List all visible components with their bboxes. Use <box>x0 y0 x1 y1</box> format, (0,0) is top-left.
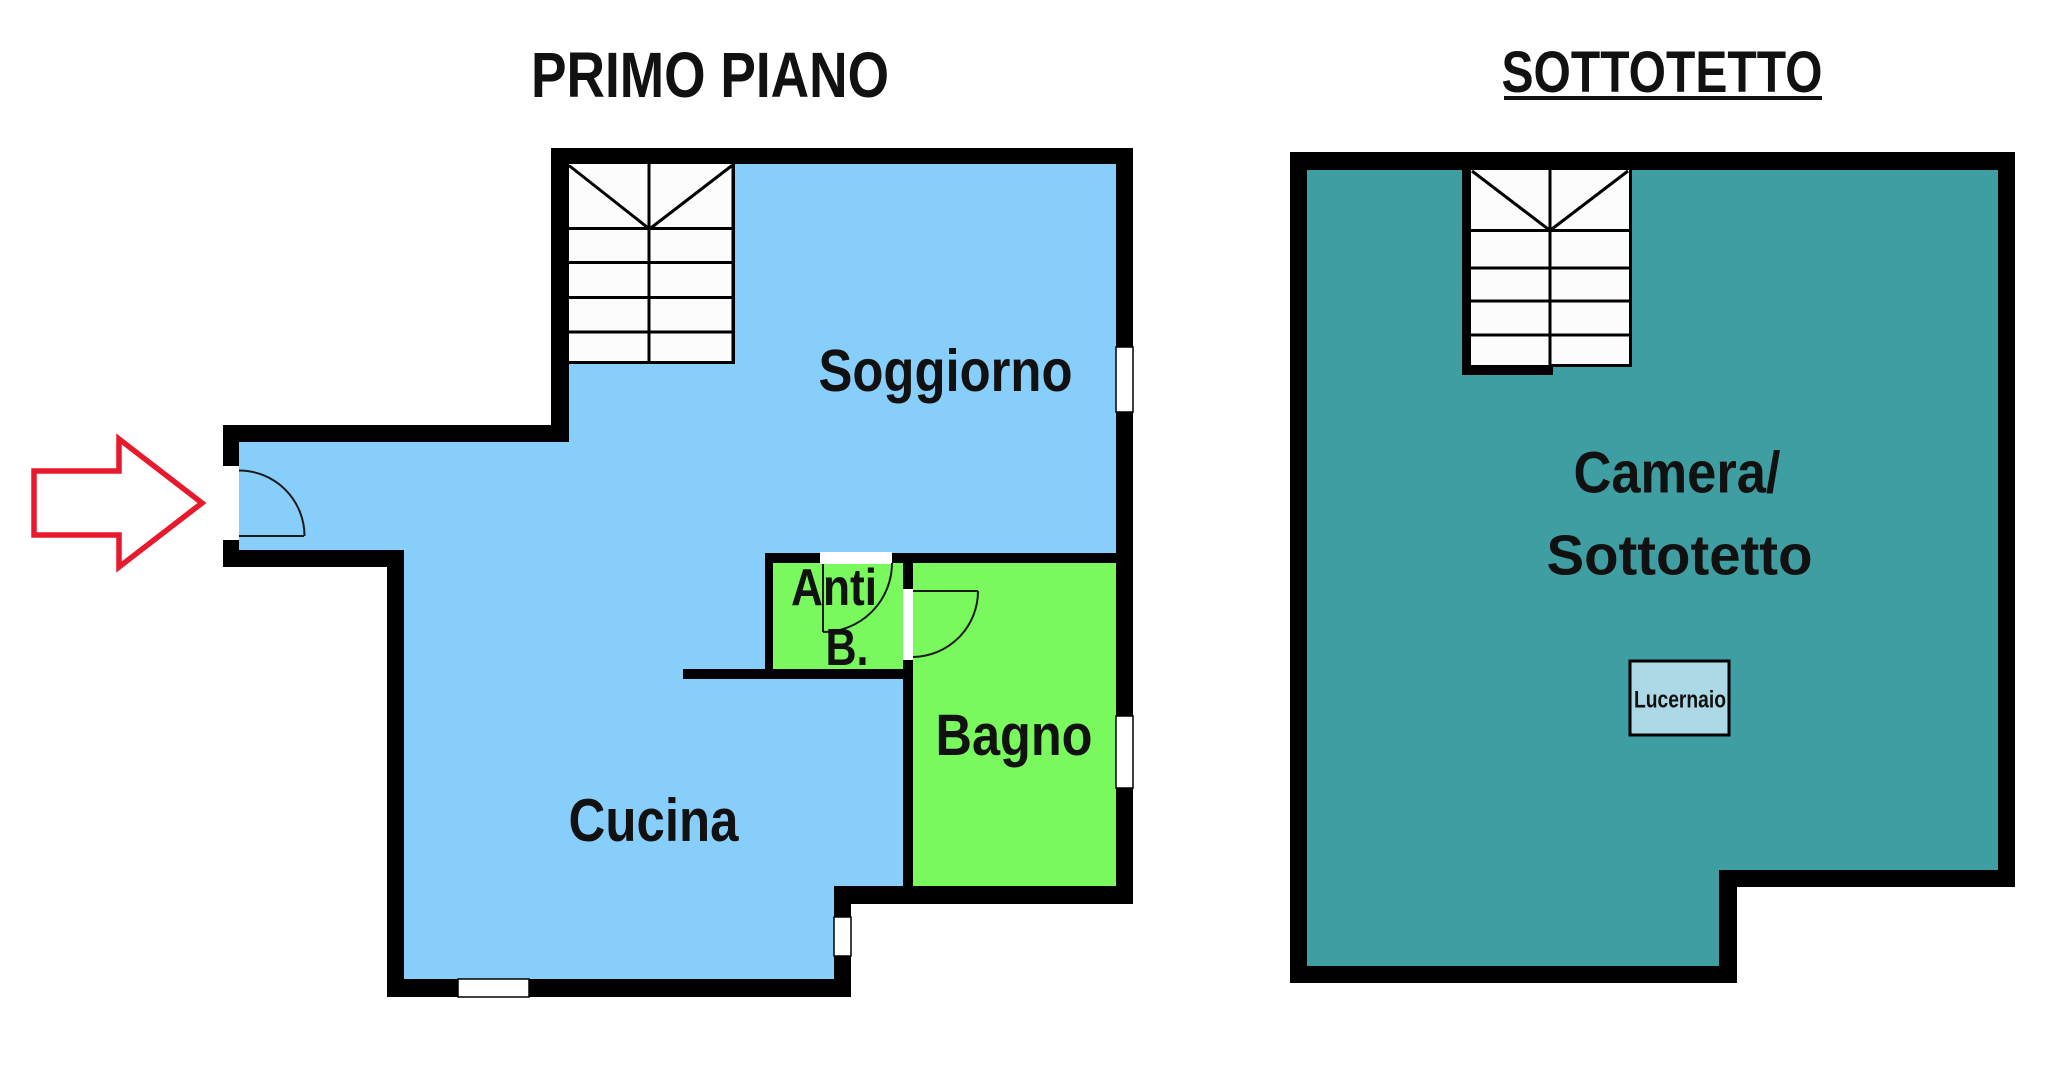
svg-text:Sottotetto: Sottotetto <box>1547 524 1813 588</box>
svg-text:Bagno: Bagno <box>936 703 1093 768</box>
svg-text:SOTTOTETTO: SOTTOTETTO <box>1502 40 1823 105</box>
svg-text:Cucina: Cucina <box>569 787 740 854</box>
svg-text:B.: B. <box>826 619 869 677</box>
svg-text:Soggiorno: Soggiorno <box>819 338 1073 404</box>
svg-text:Lucernaio: Lucernaio <box>1634 687 1726 714</box>
svg-text:PRIMO PIANO: PRIMO PIANO <box>531 39 889 111</box>
svg-text:Anti: Anti <box>791 559 877 617</box>
svg-text:Camera/: Camera/ <box>1574 441 1781 506</box>
